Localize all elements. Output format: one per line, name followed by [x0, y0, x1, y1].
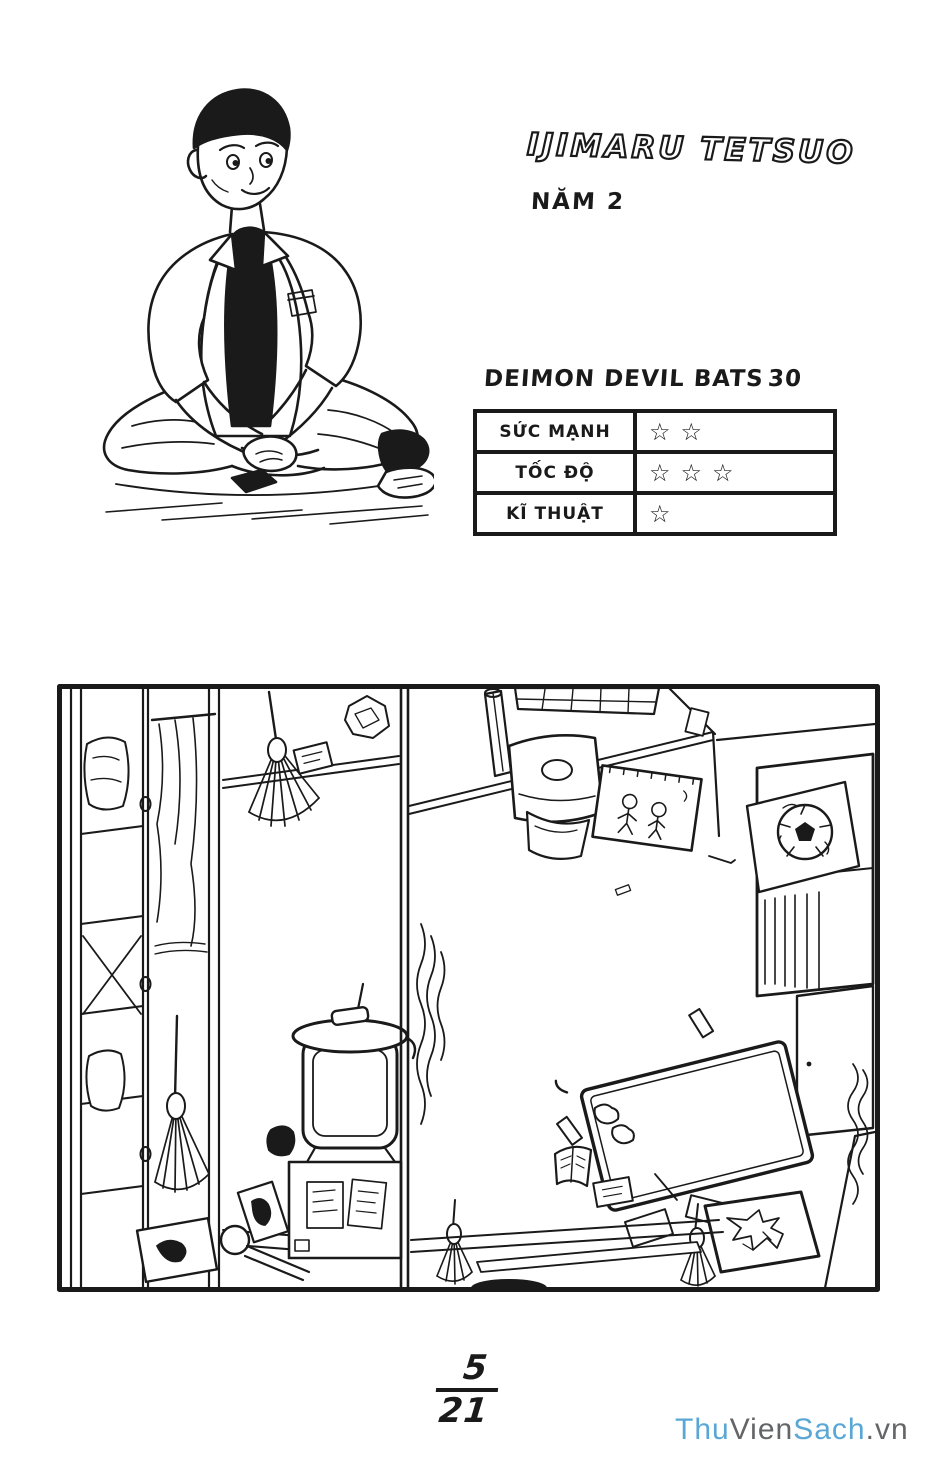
room-divider: [401, 689, 445, 1287]
stat-label: SỨC MẠNH: [475, 411, 635, 452]
page-number-denominator: 21: [424, 1394, 504, 1428]
window-grid: [515, 688, 709, 736]
watermark-segment: .vn: [866, 1413, 909, 1446]
stats-table: SỨC MẠNH ☆☆ TỐC ĐỘ ☆☆☆ KĨ THUẬT ☆: [473, 409, 837, 536]
stat-row: KĨ THUẬT ☆: [475, 493, 835, 534]
tied-bundle: [437, 1200, 715, 1286]
page-number-numerator: 5: [428, 1351, 508, 1385]
hands: [244, 437, 297, 471]
hanging-cloth: [84, 737, 128, 809]
stat-row: SỨC MẠNH ☆☆: [475, 411, 835, 452]
jersey-number: 30: [767, 366, 803, 392]
rope-curtain: [417, 924, 445, 1124]
character-name: IJIMARU TETSUO: [527, 127, 856, 172]
shopping-bag: [509, 735, 603, 859]
stat-stars: ☆☆☆: [635, 452, 835, 493]
team-name: DEIMON DEVIL BATS: [483, 366, 765, 392]
watermark-segment: Sach: [793, 1413, 865, 1446]
stat-stars: ☆☆: [635, 411, 835, 452]
manga-page: { "character_name": "IJIMARU TETSUO", "y…: [0, 0, 943, 1460]
watermark: ThuVienSach.vn: [675, 1413, 909, 1447]
rolled-posters: [485, 689, 511, 776]
stats-table-body: SỨC MẠNH ☆☆ TỐC ĐỘ ☆☆☆ KĨ THUẬT ☆: [475, 411, 835, 534]
hanging-cloth: [86, 1050, 124, 1110]
sneaker: [378, 468, 434, 498]
stat-row: TỐC ĐỘ ☆☆☆: [475, 452, 835, 493]
year-label: NĂM 2: [530, 189, 625, 215]
stat-stars: ☆: [635, 493, 835, 534]
character-illustration: [92, 82, 434, 526]
kids-drawing: [592, 765, 701, 850]
closet-shelf: [71, 689, 219, 1287]
stat-label: KĨ THUẬT: [475, 493, 635, 534]
watermark-segment: Thu: [675, 1413, 730, 1446]
head: [188, 90, 289, 232]
low-table: [538, 991, 814, 1219]
crumpled-paper: [294, 696, 389, 774]
dark-sock: [267, 1126, 294, 1155]
rice-cooker: [293, 1007, 415, 1162]
pencil: [709, 856, 735, 863]
page-number: 5 21: [424, 1351, 508, 1428]
room-panel-illustration: [57, 684, 880, 1292]
stat-label: TỐC ĐỘ: [475, 452, 635, 493]
team-line: DEIMON DEVIL BATS 30: [483, 366, 803, 392]
floor-posters: [137, 1182, 309, 1282]
watermark-segment: Vien: [730, 1413, 794, 1446]
